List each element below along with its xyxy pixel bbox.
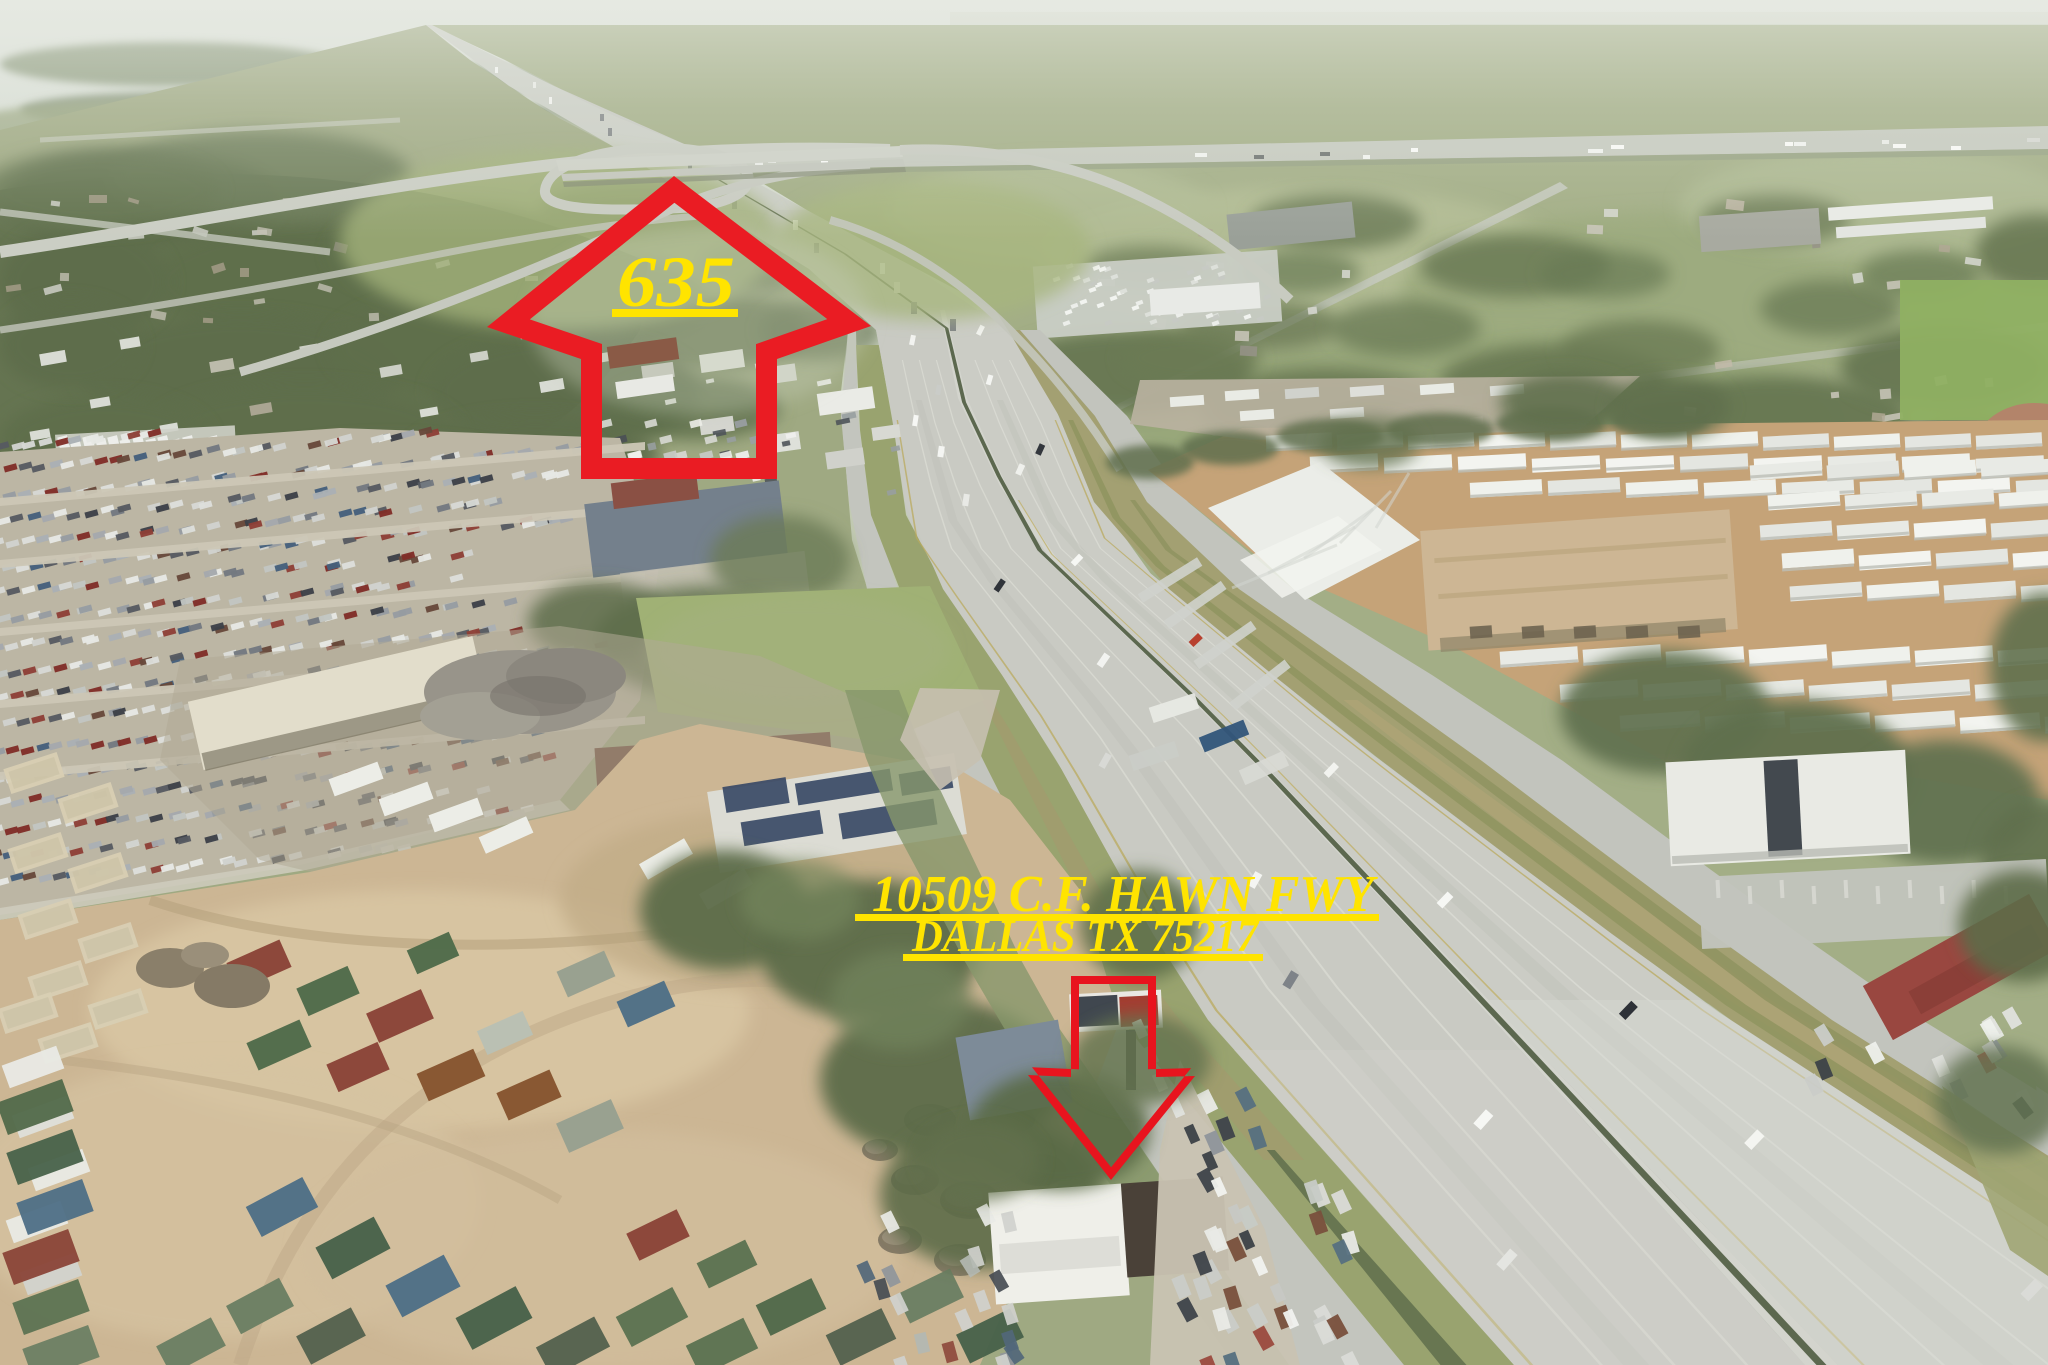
svg-text:DALLAS TX 75217: DALLAS TX 75217 (911, 911, 1259, 961)
